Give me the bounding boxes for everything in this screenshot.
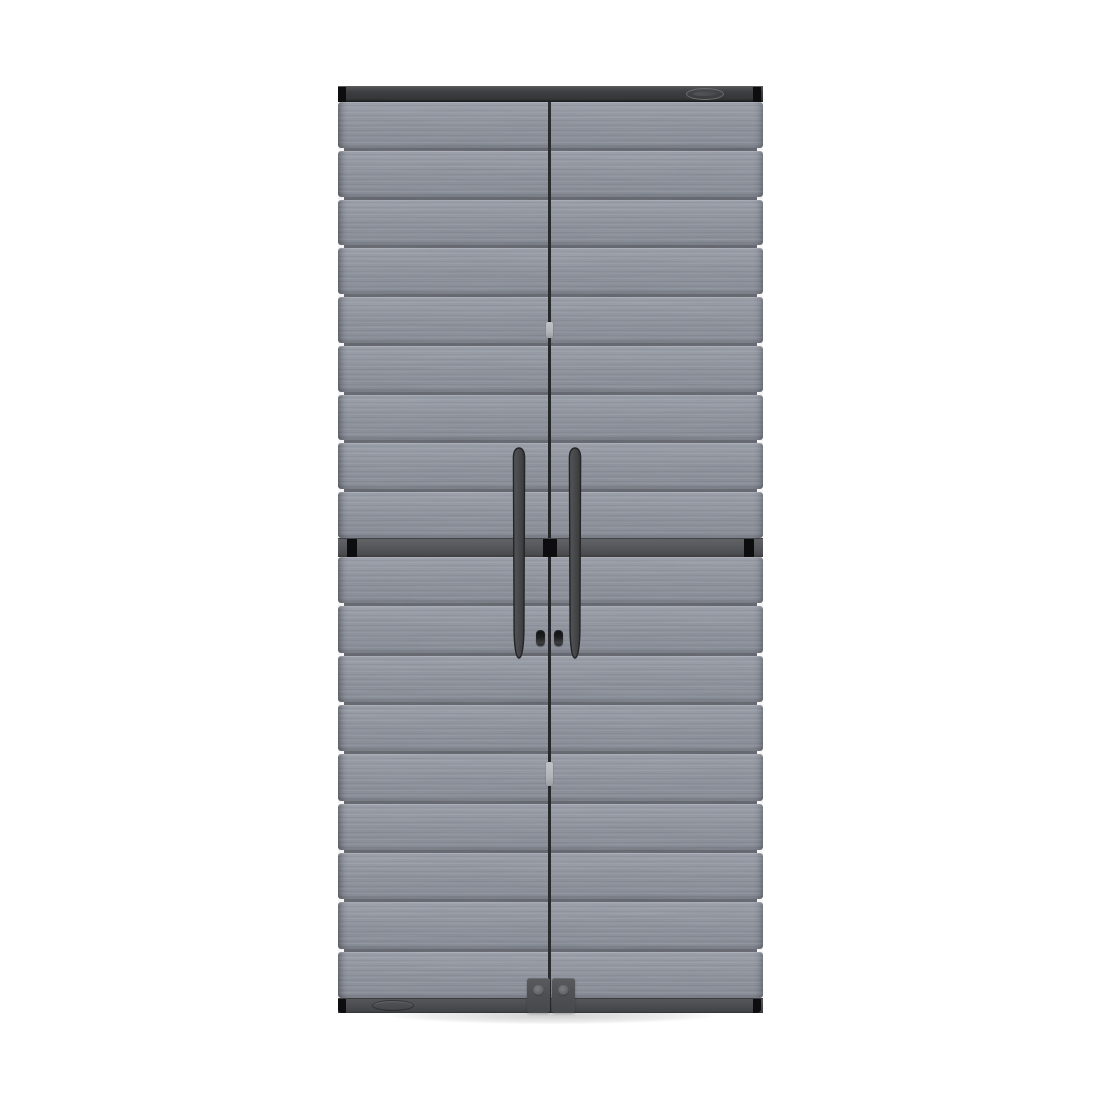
left-latch-knob[interactable]: [536, 630, 545, 646]
right-latch-knob[interactable]: [554, 630, 563, 646]
door-gap-clip-upper: [546, 322, 553, 338]
top-rail-left-cap: [338, 87, 346, 102]
top-rail-right-cap: [753, 87, 761, 102]
storage-cabinet: [338, 86, 763, 1013]
top-trim-rail: [338, 86, 763, 102]
brand-badge-oval-icon: [686, 88, 724, 100]
rivet-icon: [558, 985, 569, 996]
left-door-handle[interactable]: [511, 447, 527, 659]
door-gap-clip-lower: [546, 762, 553, 786]
band-right-cap: [744, 539, 754, 557]
band-center-cap: [543, 539, 557, 557]
rivet-icon: [533, 985, 544, 996]
middle-divider-band: [338, 538, 763, 557]
brand-badge-emboss: [693, 92, 717, 96]
right-door-handle[interactable]: [567, 447, 583, 659]
bottom-rail-left-cap: [338, 999, 346, 1013]
band-left-cap: [347, 539, 357, 557]
bottom-latch-plate-left: [527, 978, 550, 1013]
product-image: [0, 0, 1100, 1100]
bottom-rail-emboss-oval: [372, 1000, 414, 1011]
bottom-latch-plate-right: [552, 978, 575, 1013]
bottom-rail-right-cap: [753, 999, 761, 1013]
door-gap: [548, 102, 551, 1013]
